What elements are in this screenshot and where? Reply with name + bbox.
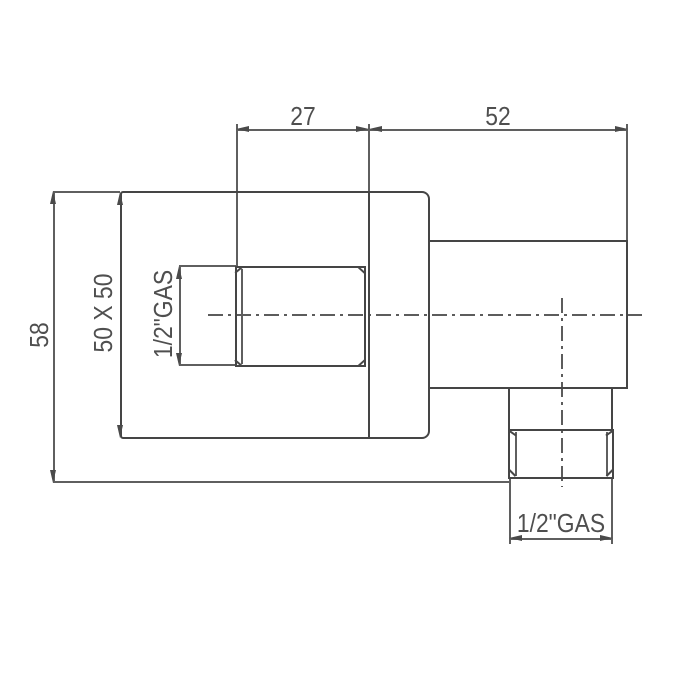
- outlet-neck-right-edge: [611, 388, 613, 431]
- dim-arrow: [117, 192, 123, 205]
- dim-arrow: [50, 191, 56, 204]
- dim-arrow: [356, 126, 369, 132]
- extension-line-body-end: [626, 124, 628, 241]
- outlet-dimension-line: [509, 538, 613, 540]
- dim-label-outlet-thread: 1/2"GAS: [517, 510, 605, 536]
- inlet-thread-chamfer-line: [241, 269, 243, 364]
- dim-label-overall-height: 58: [26, 322, 52, 347]
- dim-arrow: [117, 425, 123, 438]
- dim-label-plate-size: 50 X 50: [90, 274, 116, 353]
- extension-line-top-left: [53, 191, 120, 193]
- dim-arrow: [615, 126, 628, 132]
- outlet-thread-chamfer-line-left: [515, 432, 517, 476]
- body-outline: [428, 240, 628, 389]
- technical-drawing-canvas: 27 52 58 50 X 50 1/2"GAS 1/2"GAS: [0, 0, 700, 700]
- outlet-thread-chamfer-line-right: [606, 432, 608, 476]
- plate-face-edge: [368, 191, 370, 439]
- extension-line-plate-face: [368, 124, 370, 192]
- dim-arrow: [236, 126, 249, 132]
- dim-label-boss-length: 27: [290, 103, 315, 129]
- outlet-neck-left-edge: [508, 388, 510, 431]
- outlet-thread-outline: [508, 429, 614, 479]
- dim-arrow: [50, 470, 56, 483]
- inlet-thread-boss-outline: [235, 266, 366, 367]
- dim-arrow: [369, 126, 382, 132]
- extension-line-bottom: [53, 481, 510, 483]
- dim-label-inlet-thread: 1/2"GAS: [150, 270, 176, 358]
- dim-label-body-length: 52: [485, 103, 510, 129]
